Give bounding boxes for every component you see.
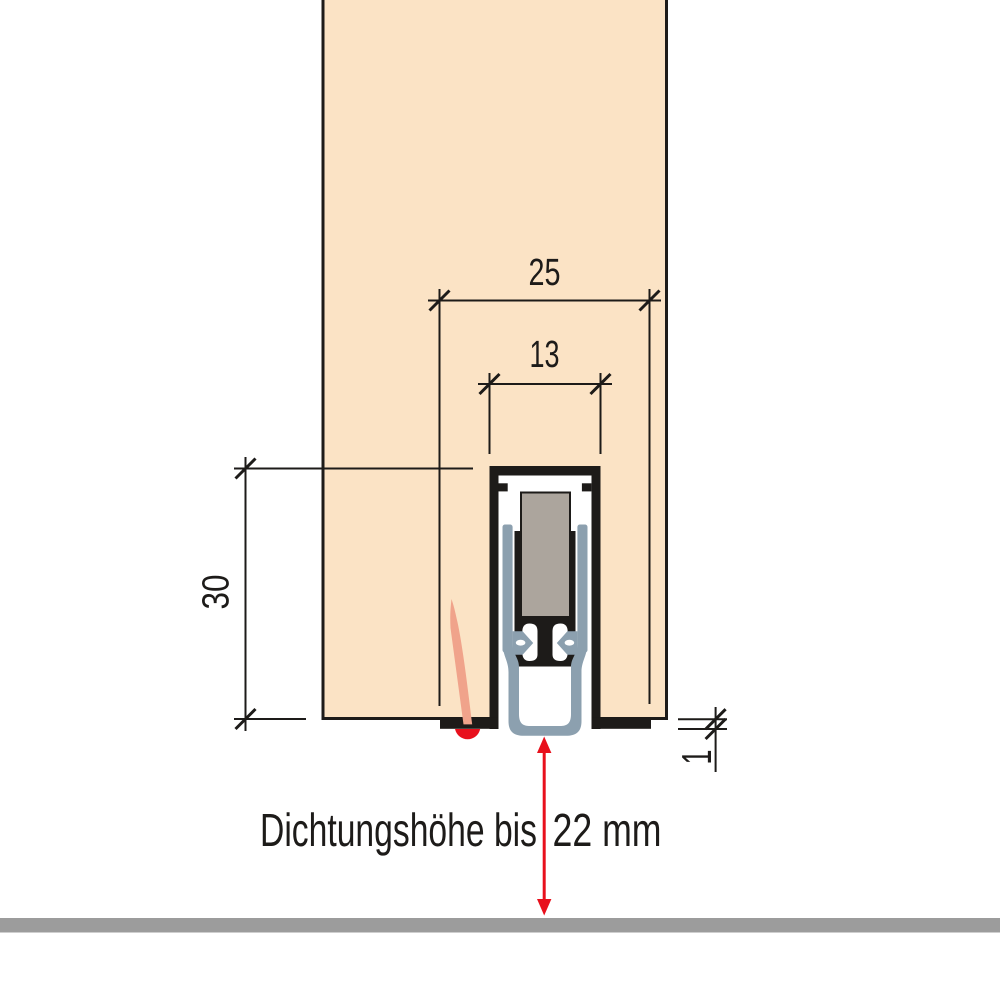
svg-text:30: 30: [196, 575, 238, 610]
svg-text:Dichtungshöhe bis: Dichtungshöhe bis: [260, 804, 537, 856]
svg-text:22 mm: 22 mm: [553, 804, 662, 856]
svg-text:13: 13: [530, 334, 560, 376]
svg-text:1: 1: [673, 750, 720, 765]
svg-text:25: 25: [529, 252, 561, 294]
